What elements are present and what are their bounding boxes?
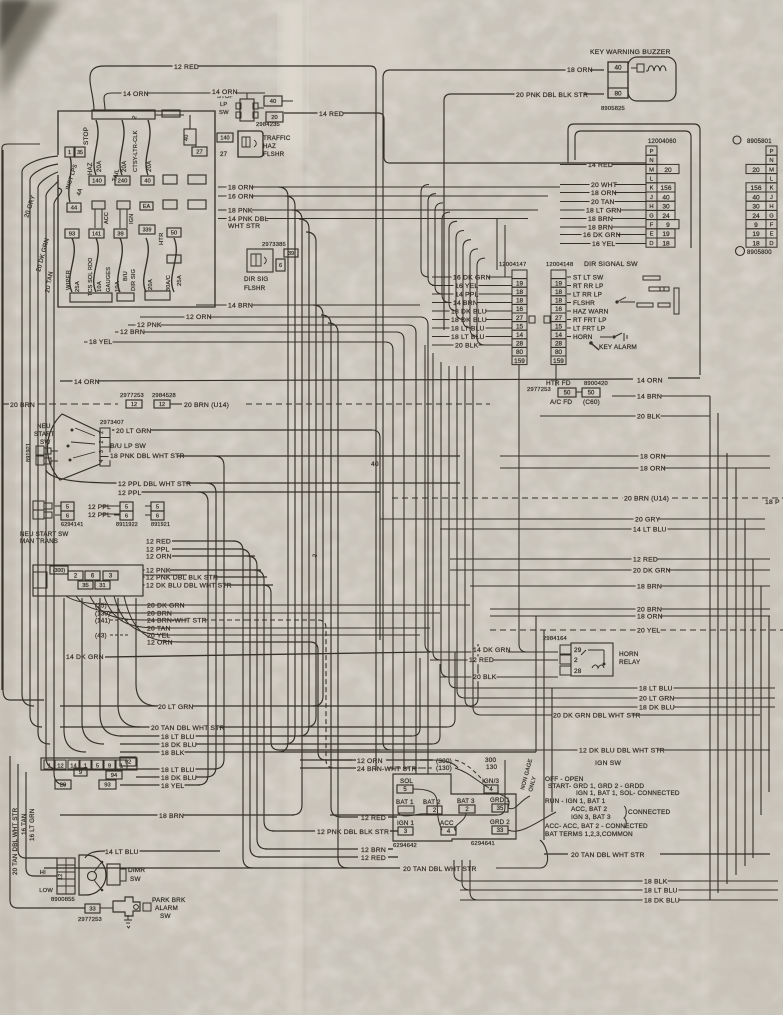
svg-text:K: K [650,186,654,192]
svg-text:2: 2 [574,657,578,664]
svg-text:IGN 3, BAT 3: IGN 3, BAT 3 [571,814,611,821]
svg-text:12 RED: 12 RED [361,815,386,822]
svg-text:NEU: NEU [37,423,51,430]
svg-text:35: 35 [77,150,83,156]
svg-text:2984528: 2984528 [152,393,176,399]
svg-text:(130): (130) [436,765,452,772]
svg-text:5: 5 [125,505,128,511]
svg-text:G: G [769,213,774,219]
svg-text:12: 12 [57,764,63,770]
svg-text:HAZ: HAZ [88,162,94,175]
svg-text:KEY ALARM: KEY ALARM [599,344,637,351]
svg-text:33: 33 [89,907,95,913]
svg-text:4: 4 [99,459,105,462]
svg-text:GRD 2: GRD 2 [490,819,510,826]
svg-text:20 DK GRN DBL WHT STR: 20 DK GRN DBL WHT STR [553,713,641,720]
svg-text:18 LT BLU: 18 LT BLU [161,767,195,774]
svg-text:12 PNK: 12 PNK [146,568,171,575]
svg-text:18 LT BLU: 18 LT BLU [161,734,195,741]
svg-text:20 BLK: 20 BLK [637,414,661,421]
svg-text:18 YEL: 18 YEL [161,783,184,790]
svg-text:9: 9 [754,222,758,229]
svg-text:2: 2 [99,440,105,443]
svg-text:FLSHR: FLSHR [263,151,285,158]
svg-text:14 DK GRN: 14 DK GRN [66,654,104,661]
svg-text:HORN: HORN [619,651,639,658]
svg-text:18 LT BLU: 18 LT BLU [451,334,485,341]
svg-text:RELAY: RELAY [619,659,641,666]
svg-text:16 ORN: 16 ORN [228,194,254,201]
svg-text:156: 156 [660,185,671,192]
svg-text:K: K [770,186,774,192]
svg-text:LOW: LOW [39,888,53,894]
svg-text:28: 28 [555,341,563,348]
svg-text:START: START [34,431,55,438]
svg-text:ACC: ACC [104,212,110,224]
svg-text:30: 30 [752,204,760,211]
svg-text:12 ORN: 12 ORN [186,314,212,321]
svg-text:12 PPL: 12 PPL [88,512,111,519]
svg-text:12 DK BLU DBL WHT STR: 12 DK BLU DBL WHT STR [146,583,232,590]
svg-text:12 RED: 12 RED [174,64,199,71]
svg-text:HAZ WARN: HAZ WARN [573,309,609,316]
svg-text:(300): (300) [436,758,452,765]
svg-text:40: 40 [614,64,622,71]
svg-text:20 DK GRN: 20 DK GRN [147,603,185,610]
svg-text:20 TAN DBL WHT STR: 20 TAN DBL WHT STR [403,866,477,873]
svg-text:12 PNK: 12 PNK [137,322,162,329]
svg-text:TCS SOL RDO: TCS SOL RDO [88,257,94,296]
svg-text:SW: SW [160,913,171,920]
svg-text:16 DK GRN: 16 DK GRN [453,275,491,282]
svg-text:18 BRN: 18 BRN [159,813,184,820]
svg-text:12 DK BLU DBL WHT STR: 12 DK BLU DBL WHT STR [579,748,665,755]
svg-text:18 ORN: 18 ORN [591,190,617,197]
svg-text:2973385: 2973385 [262,242,286,248]
svg-text:N: N [769,158,773,164]
svg-text:14 PPL: 14 PPL [455,292,479,299]
svg-text:18 BLK: 18 BLK [161,750,185,757]
svg-text:DIMR: DIMR [128,867,145,874]
svg-text:12 PPL: 12 PPL [118,490,142,497]
svg-text:18 DK BLU: 18 DK BLU [451,317,487,324]
svg-text:SOL: SOL [400,778,413,785]
svg-text:DIR SIG: DIR SIG [131,269,137,291]
svg-text:ACC- ACC, BAT 2 - CONNECTED: ACC- ACC, BAT 2 - CONNECTED [545,823,648,830]
svg-text:18: 18 [555,298,563,305]
svg-text:28: 28 [516,341,524,348]
svg-text:30A/C: 30A/C [166,275,172,291]
svg-text:HI: HI [40,870,46,876]
svg-text:20 TAN DBL WHT STR: 20 TAN DBL WHT STR [12,807,19,875]
svg-text:9: 9 [79,770,82,776]
svg-text:40: 40 [371,461,379,468]
svg-text:18 YEL: 18 YEL [89,339,112,346]
svg-text:93: 93 [104,783,110,789]
svg-text:16: 16 [516,306,524,313]
svg-text:WHT STR: WHT STR [228,223,260,230]
svg-text:KEY WARNING BUZZER: KEY WARNING BUZZER [590,49,671,56]
svg-text:ST LT SW: ST LT SW [573,275,604,282]
svg-text:SW: SW [219,110,229,116]
svg-text:40: 40 [184,134,190,141]
svg-text:10A: 10A [97,281,103,292]
svg-text:15: 15 [516,323,524,330]
svg-text:RT RR LP: RT RR LP [573,283,604,290]
svg-text:5: 5 [96,764,99,770]
svg-text:20 DK GRN: 20 DK GRN [633,568,671,575]
svg-text:80: 80 [516,349,524,356]
svg-text:STOP: STOP [83,127,90,145]
svg-text:14 BRN: 14 BRN [228,303,253,310]
svg-text:20 BLK: 20 BLK [455,343,479,350]
svg-text:E: E [650,232,654,238]
svg-text:2: 2 [99,431,105,434]
svg-text:6294641: 6294641 [471,841,495,847]
svg-text:6294141: 6294141 [61,522,83,528]
svg-text:20: 20 [271,115,277,121]
svg-text:HORN: HORN [573,334,593,341]
svg-text:20 LT GRN: 20 LT GRN [116,428,152,435]
svg-text:START- GRD 1, GRD 2 - GRDD: START- GRD 1, GRD 2 - GRDD [548,783,644,790]
svg-text:18 P: 18 P [765,499,780,506]
svg-text:(43): (43) [95,633,107,640]
svg-text:29: 29 [574,647,582,654]
svg-text:8905825: 8905825 [601,106,625,112]
svg-text:18 BRN: 18 BRN [588,216,613,223]
svg-text:N: N [649,158,653,164]
svg-text:G: G [649,213,654,219]
svg-text:20 GRY: 20 GRY [635,517,661,524]
svg-text:14 DK GRN: 14 DK GRN [473,647,511,654]
svg-text:14 ORN: 14 ORN [74,379,100,386]
svg-text:24 BRN-WHT STR: 24 BRN-WHT STR [147,618,207,625]
svg-text:31: 31 [99,583,105,589]
svg-text:50: 50 [564,391,571,397]
svg-text:39: 39 [288,251,294,257]
svg-text:18 LT GRN: 18 LT GRN [586,208,622,215]
svg-text:300: 300 [485,757,497,764]
svg-text:12 PPL: 12 PPL [88,504,111,511]
svg-text:20A: 20A [147,161,153,172]
svg-text:RUN - IGN 1, BAT 1: RUN - IGN 1, BAT 1 [545,798,606,805]
svg-text:33: 33 [497,828,504,834]
svg-text:20A: 20A [97,161,103,172]
svg-text:F: F [650,223,654,229]
svg-text:15: 15 [555,323,563,330]
svg-text:6: 6 [279,263,282,269]
svg-text:14 LT BLU: 14 LT BLU [633,527,667,534]
svg-text:19: 19 [662,231,670,238]
svg-text:93: 93 [69,232,75,238]
svg-text:12 RED: 12 RED [146,539,171,546]
svg-text:80: 80 [614,90,622,97]
svg-text:FLSHR: FLSHR [244,285,266,292]
svg-text:20 BLK: 20 BLK [473,674,497,681]
svg-text:18 PNK: 18 PNK [228,208,253,215]
svg-text:28: 28 [574,668,582,675]
svg-text:16 TAN: 16 TAN [21,813,28,835]
svg-text:WIPER: WIPER [66,270,72,290]
svg-text:12 RED: 12 RED [633,557,658,564]
svg-text:P: P [650,149,654,155]
svg-text:FLSHR: FLSHR [573,300,595,307]
svg-text:M: M [649,167,654,173]
svg-text:44: 44 [71,206,78,212]
svg-text:20 TAN DBL WHT STR: 20 TAN DBL WHT STR [151,725,225,732]
svg-text:20 BRN: 20 BRN [637,607,662,614]
svg-text:18 ORN: 18 ORN [637,614,663,621]
svg-text:(300): (300) [53,568,65,574]
svg-text:NEU START SW: NEU START SW [20,531,68,538]
svg-text:8905801: 8905801 [747,139,772,145]
svg-text:SW: SW [130,876,141,883]
svg-text:39: 39 [117,232,123,238]
svg-text:TRAFFIC: TRAFFIC [263,135,291,142]
svg-text:27: 27 [220,151,228,158]
svg-text:(141): (141) [95,618,110,625]
svg-text:240: 240 [118,179,128,185]
svg-text:6: 6 [125,514,128,520]
svg-text:14: 14 [516,332,524,339]
svg-text:2977253: 2977253 [120,393,144,399]
svg-text:CONNECTED: CONNECTED [628,809,670,816]
svg-text:159: 159 [514,358,525,365]
svg-text:24: 24 [662,213,670,220]
svg-text:SW: SW [40,439,50,446]
svg-text:20 YEL: 20 YEL [637,628,660,635]
svg-text:20A: 20A [148,279,154,290]
svg-text:27: 27 [555,315,563,322]
svg-text:LT FRT LP: LT FRT LP [573,326,605,333]
svg-text:12 BRN: 12 BRN [120,329,145,336]
svg-text:12 PNK DBL BLK STR: 12 PNK DBL BLK STR [317,829,389,836]
svg-text:HTR: HTR [159,232,165,245]
svg-text:8900855: 8900855 [51,897,75,903]
svg-text:MAN TRANS: MAN TRANS [20,538,58,545]
svg-text:(C60): (C60) [583,399,600,406]
svg-text:24 BRN-WHT STR: 24 BRN-WHT STR [357,766,417,773]
svg-text:18 LT BLU: 18 LT BLU [644,888,678,895]
svg-text:IGN 1: IGN 1 [397,820,415,827]
svg-text:19: 19 [752,231,760,238]
svg-text:40: 40 [662,194,670,201]
svg-text:18 LT BLU: 18 LT BLU [639,686,673,693]
svg-text:27: 27 [516,315,524,322]
svg-text:2977253: 2977253 [527,387,551,393]
svg-text:14 BRN: 14 BRN [453,300,478,307]
svg-text:B/U LP SW: B/U LP SW [110,443,146,450]
svg-text:18 ORN: 18 ORN [640,466,666,473]
svg-text:140: 140 [92,179,102,185]
svg-text:2984235: 2984235 [256,122,280,128]
svg-text:80: 80 [555,349,563,356]
svg-text:27: 27 [196,150,202,156]
svg-text:50: 50 [588,391,595,397]
svg-text:12: 12 [131,402,137,408]
svg-text:14 LT BLU: 14 LT BLU [105,849,139,856]
svg-text:20 BRN (U14): 20 BRN (U14) [624,496,669,503]
svg-text:141: 141 [92,231,101,237]
svg-text:2973407: 2973407 [100,420,124,426]
svg-text:6: 6 [66,514,69,520]
svg-text:F: F [770,223,774,229]
svg-text:3: 3 [99,450,105,453]
svg-text:12 PNK DBL BLK STR: 12 PNK DBL BLK STR [146,575,218,582]
svg-text:J: J [770,195,773,201]
svg-text:12004147: 12004147 [499,262,526,268]
svg-text:12 ORN: 12 ORN [357,758,383,765]
svg-text:35: 35 [497,806,504,812]
svg-text:8905800: 8905800 [747,250,772,256]
svg-text:5: 5 [66,505,69,511]
svg-text:IGN: IGN [129,214,135,224]
svg-text:BAT 3: BAT 3 [457,798,475,805]
svg-text:12: 12 [58,874,64,880]
svg-text:CTSY-LTR-CLK: CTSY-LTR-CLK [133,130,139,172]
svg-text:18 BLK: 18 BLK [644,879,668,886]
svg-text:14 ORN: 14 ORN [212,89,238,96]
svg-text:ACC, BAT 2: ACC, BAT 2 [571,806,607,813]
svg-text:12 ORN: 12 ORN [146,554,172,561]
svg-text:BAT 2: BAT 2 [423,799,441,806]
svg-text:9: 9 [666,222,670,229]
svg-text:14 PNK DBL: 14 PNK DBL [228,216,269,223]
svg-text:94: 94 [111,773,118,779]
svg-text:12004060: 12004060 [648,139,677,145]
svg-text:2984164: 2984164 [543,636,568,642]
svg-text:20 BRN: 20 BRN [147,611,172,618]
svg-text:20 WHT: 20 WHT [591,182,617,189]
svg-text:6294642: 6294642 [393,843,417,849]
svg-text:12 RED: 12 RED [361,855,386,862]
svg-text:18 ORN: 18 ORN [640,454,666,461]
svg-text:10A: 10A [115,281,121,292]
svg-text:20: 20 [664,167,672,174]
svg-text:891921: 891921 [151,522,170,528]
svg-text:24: 24 [752,213,760,220]
svg-text:IGN 1, BAT 1, SOL- CONNECTED: IGN 1, BAT 1, SOL- CONNECTED [576,790,680,797]
svg-text:14 ORN: 14 ORN [637,378,663,385]
svg-text:18: 18 [662,240,670,247]
svg-text:18 ORN: 18 ORN [228,185,254,192]
svg-text:18 LT BLU: 18 LT BLU [451,326,485,333]
svg-text:H: H [769,204,773,210]
svg-text:6: 6 [156,514,159,520]
svg-text:HTR FD: HTR FD [546,380,571,387]
svg-text:25A: 25A [75,281,81,292]
svg-text:LT RR LP: LT RR LP [573,292,602,299]
svg-text:25A: 25A [177,275,183,286]
svg-text:40: 40 [752,194,760,201]
svg-text:29: 29 [60,783,66,789]
svg-text:20A: 20A [122,161,128,172]
svg-text:20 TAN: 20 TAN [147,626,171,633]
svg-text:18: 18 [555,289,563,296]
svg-text:IGN SW: IGN SW [595,760,622,767]
svg-text:A/C FD: A/C FD [550,399,572,406]
svg-text:D: D [649,241,653,247]
svg-text:140: 140 [220,135,229,141]
svg-text:20 TAN: 20 TAN [591,199,615,206]
svg-text:1: 1 [68,150,71,156]
svg-text:18 DK BLU: 18 DK BLU [161,742,197,749]
svg-text:35: 35 [82,583,88,589]
svg-text:40: 40 [144,179,150,185]
svg-text:12 PPL: 12 PPL [146,547,170,554]
svg-text:E: E [770,232,774,238]
svg-text:14: 14 [555,332,563,339]
svg-text:D: D [769,241,773,247]
svg-text:PARK BRK: PARK BRK [152,897,186,904]
svg-text:14 ORN: 14 ORN [123,91,149,98]
svg-text:18 DK BLU: 18 DK BLU [644,898,680,905]
svg-text:HAZ: HAZ [263,143,276,150]
svg-text:16 YEL: 16 YEL [455,283,478,290]
svg-text:18: 18 [516,298,524,305]
svg-text:18: 18 [516,289,524,296]
svg-text:9: 9 [108,764,111,770]
svg-text:19: 19 [516,280,524,287]
svg-text:19: 19 [555,280,563,287]
svg-text:8911922: 8911922 [116,522,138,528]
svg-text:B/U: B/U [123,271,129,281]
svg-text:18 BRN: 18 BRN [588,225,613,232]
svg-text:891921: 891921 [26,443,32,462]
svg-text:12: 12 [159,402,165,408]
svg-text:DIR SIG: DIR SIG [244,276,268,283]
svg-text:OFF - OPEN: OFF - OPEN [545,776,584,783]
svg-text:16: 16 [555,306,563,313]
svg-text:18: 18 [752,240,760,247]
svg-text:8900420: 8900420 [584,381,608,387]
svg-text:130: 130 [486,764,498,771]
svg-text:EA: EA [143,204,151,210]
svg-text:20 PNK DBL BLK STR: 20 PNK DBL BLK STR [516,92,588,99]
svg-text:GAUGES: GAUGES [106,267,112,292]
svg-text:20: 20 [752,167,760,174]
svg-text:30: 30 [662,204,670,211]
svg-text:RT FRT LP: RT FRT LP [573,317,607,324]
svg-text:92: 92 [125,760,131,766]
svg-text:18 PNK DBL WHT STR: 18 PNK DBL WHT STR [110,453,185,460]
svg-text:20 BRN (U14): 20 BRN (U14) [184,402,229,409]
svg-text:12 BRN: 12 BRN [361,847,386,854]
svg-text:14 RED: 14 RED [319,111,344,118]
svg-text:18 ORN: 18 ORN [567,67,593,74]
svg-text:LP: LP [220,102,228,108]
svg-text:159: 159 [553,358,564,365]
svg-text:P: P [770,149,774,155]
svg-text:M: M [769,167,774,173]
svg-text:2977253: 2977253 [78,917,102,923]
svg-text:12004148: 12004148 [546,262,573,268]
svg-text:14 BRN: 14 BRN [637,394,662,401]
svg-text:BAT 1: BAT 1 [396,799,414,806]
svg-text:12 PPL DBL WHT STR: 12 PPL DBL WHT STR [118,481,191,488]
svg-text:20 LT GRN: 20 LT GRN [158,704,194,711]
svg-text:18 DK BLU: 18 DK BLU [639,705,675,712]
svg-text:20 TAN DBL WHT STR: 20 TAN DBL WHT STR [571,852,645,859]
svg-text:16 DK GRN: 16 DK GRN [583,232,621,239]
svg-text:ALARM: ALARM [155,905,178,912]
svg-text:20 LT GRN: 20 LT GRN [639,696,675,703]
svg-text:339: 339 [143,227,152,233]
svg-text:16 YEL: 16 YEL [592,241,615,248]
svg-text:40: 40 [270,99,276,105]
svg-text:16 LT GRN: 16 LT GRN [29,808,36,841]
svg-text:156: 156 [750,185,761,192]
